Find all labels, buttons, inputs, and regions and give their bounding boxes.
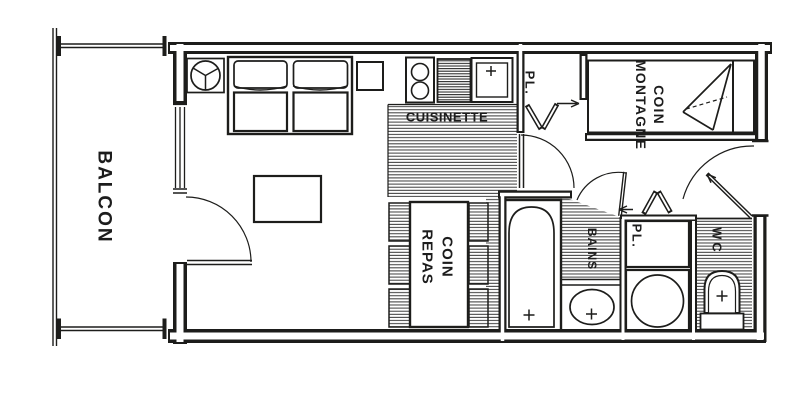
- double-bed: [228, 57, 352, 134]
- balcony-label: BALCON: [91, 150, 116, 243]
- bathtub: [503, 200, 561, 332]
- wc-label: WC: [708, 227, 725, 255]
- hanging-rod-chevron-bath: [619, 192, 671, 215]
- access-arrow-right: [557, 100, 579, 107]
- bath-label: BAINS: [583, 228, 599, 270]
- balcony-door: [186, 197, 252, 265]
- hanging-rod-chevron-hall: [527, 100, 579, 129]
- entry-door: [683, 146, 754, 218]
- closet-hall-label: PL.: [521, 71, 538, 96]
- round-table: [187, 59, 224, 93]
- toilet: [701, 271, 744, 330]
- kitchen-counter: [438, 59, 471, 102]
- dining-corner-label: COIN REPAS: [418, 229, 457, 285]
- mountain-corner-label: COIN MONTAGNE: [632, 60, 668, 150]
- closet-bath-label: PL.: [628, 224, 645, 249]
- bunk-bed: [588, 61, 754, 133]
- stove: [406, 58, 434, 103]
- living-room-door: [520, 134, 575, 188]
- floor-plan-drawing: [0, 0, 800, 402]
- washbasin: [570, 290, 614, 325]
- coffee-table: [254, 176, 321, 222]
- water-heater: [626, 270, 689, 332]
- kitchen-sink: [472, 58, 513, 102]
- kitchenette-label: CUISINETTE: [406, 110, 488, 127]
- side-table: [357, 62, 383, 90]
- window: [176, 107, 185, 188]
- floor-plan: BALCON CUISINETTE COIN REPAS COIN MONTAG…: [0, 0, 800, 402]
